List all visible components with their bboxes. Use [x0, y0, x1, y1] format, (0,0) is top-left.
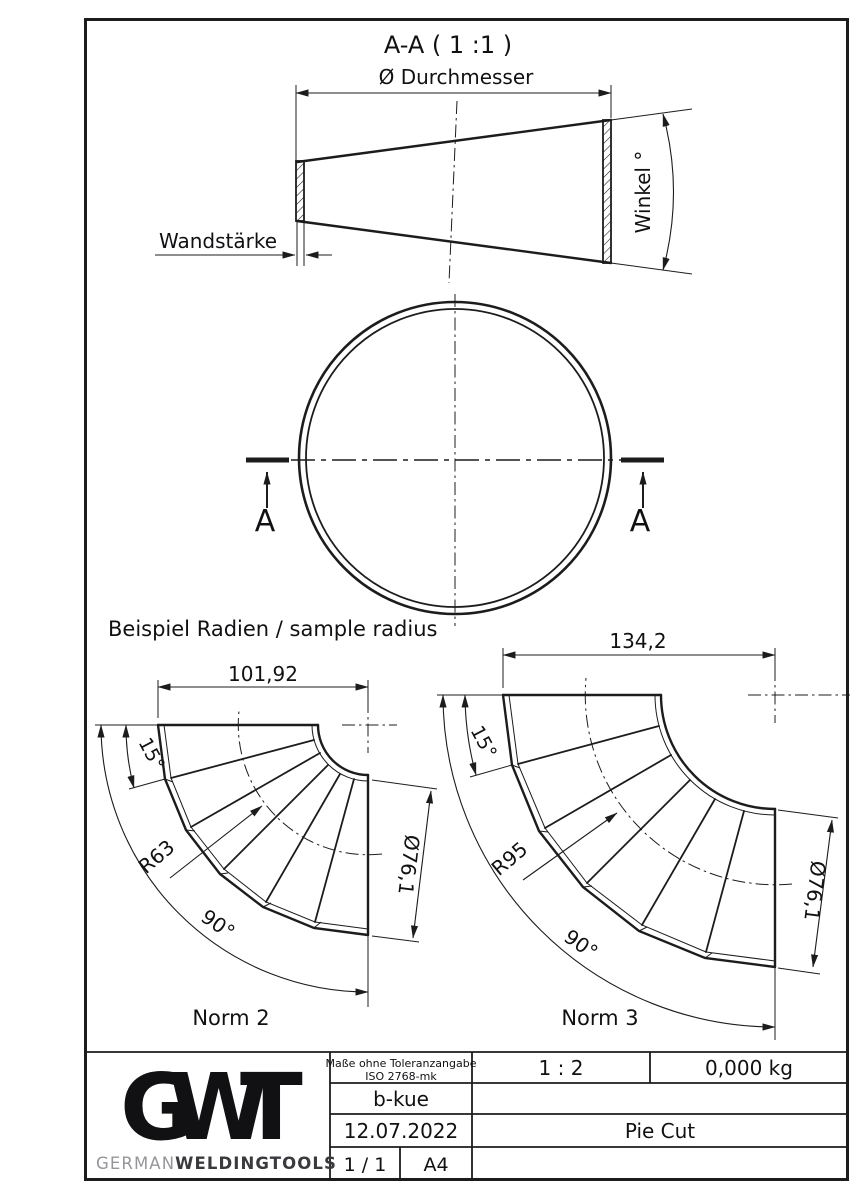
- tolerance-note-line1: Maße ohne Toleranzangabe: [326, 1057, 477, 1070]
- logo-brand-bold: WELDINGTOOLS: [175, 1154, 337, 1173]
- norm2-width-dim: 101,92: [228, 662, 298, 686]
- weight-value: 0,000 kg: [705, 1056, 793, 1080]
- date-value: 12.07.2022: [344, 1119, 459, 1143]
- ext-line: [372, 780, 437, 789]
- section-marker-a-left: A: [255, 504, 276, 539]
- ext-line: [470, 765, 512, 777]
- logo-letter-t: T: [240, 1054, 303, 1161]
- tolerance-note-line2: ISO 2768-mk: [365, 1070, 437, 1083]
- norm3-total-angle: 90°: [560, 924, 603, 964]
- ext-line: [611, 109, 692, 120]
- cone-big-end-wall: [603, 120, 611, 263]
- norm3-name: Norm 3: [561, 1006, 638, 1030]
- section-marker-a-right: A: [630, 504, 651, 539]
- norm3-drawing: 134,2 15° 90° R95 Ø76,1 Norm 3: [437, 629, 850, 1040]
- part-name: Pie Cut: [625, 1119, 695, 1143]
- ext-line: [372, 936, 419, 942]
- norm2-segment-angle-arc: [126, 725, 134, 788]
- norm3-pipe-diameter: Ø76,1: [799, 859, 830, 922]
- ext-line: [778, 968, 820, 974]
- cone-centerline: [449, 101, 457, 283]
- norm3-width-dim: 134,2: [609, 629, 666, 653]
- norm3-bend-radius: R95: [487, 837, 533, 881]
- norm3-weld-ticks: [512, 765, 712, 958]
- drawing-sheet: A-A ( 1 :1 ) Ø Durchmesser Wandstärke Wi…: [0, 0, 868, 1199]
- ext-line: [778, 810, 838, 818]
- norm2-pipe-diameter: Ø76,1: [393, 833, 424, 896]
- scale-value: 1 : 2: [539, 1056, 584, 1080]
- paper-format: A4: [423, 1154, 448, 1176]
- cone-small-end-wall: [296, 161, 304, 221]
- angle-label: Winkel °: [631, 151, 655, 234]
- plan-view: A A: [246, 294, 664, 626]
- diameter-label: Ø Durchmesser: [379, 65, 535, 89]
- norm3-center-cross: [748, 668, 850, 723]
- sheet-number: 1 / 1: [344, 1154, 387, 1176]
- technical-drawing: A-A ( 1 :1 ) Ø Durchmesser Wandstärke Wi…: [0, 0, 868, 1199]
- section-view: A-A ( 1 :1 ) Ø Durchmesser Wandstärke Wi…: [155, 31, 692, 283]
- cone-top-edge: [297, 120, 611, 162]
- norm2-center-cross: [342, 700, 397, 753]
- norm2-bend-radius: R63: [134, 835, 180, 879]
- norm2-name: Norm 2: [192, 1006, 269, 1030]
- wall-thickness-label: Wandstärke: [159, 229, 277, 253]
- logo-brand-text: GERMANWELDINGTOOLS: [96, 1154, 337, 1173]
- logo-brand-light: GERMAN: [96, 1154, 175, 1173]
- norm2-drawing: 101,92 15° 90° R63 Ø76,1 Norm 2: [95, 662, 437, 1030]
- angle-dim-arc: [663, 114, 674, 270]
- norm2-segment-joints: [171, 740, 354, 922]
- cone-bottom-edge: [297, 221, 611, 263]
- gwt-logo: G W T GERMANWELDINGTOOLS: [96, 1054, 337, 1173]
- section-title: A-A ( 1 :1 ): [384, 31, 512, 59]
- norm3-segment-joints: [518, 726, 744, 952]
- norm2-weld-ticks: [165, 779, 321, 928]
- examples-heading: Beispiel Radien / sample radius: [108, 617, 437, 641]
- author-value: b-kue: [373, 1087, 429, 1111]
- title-block: Maße ohne Toleranzangabe ISO 2768-mk 1 :…: [84, 1052, 849, 1180]
- ext-line: [611, 263, 692, 274]
- norm2-total-angle: 90°: [197, 904, 240, 944]
